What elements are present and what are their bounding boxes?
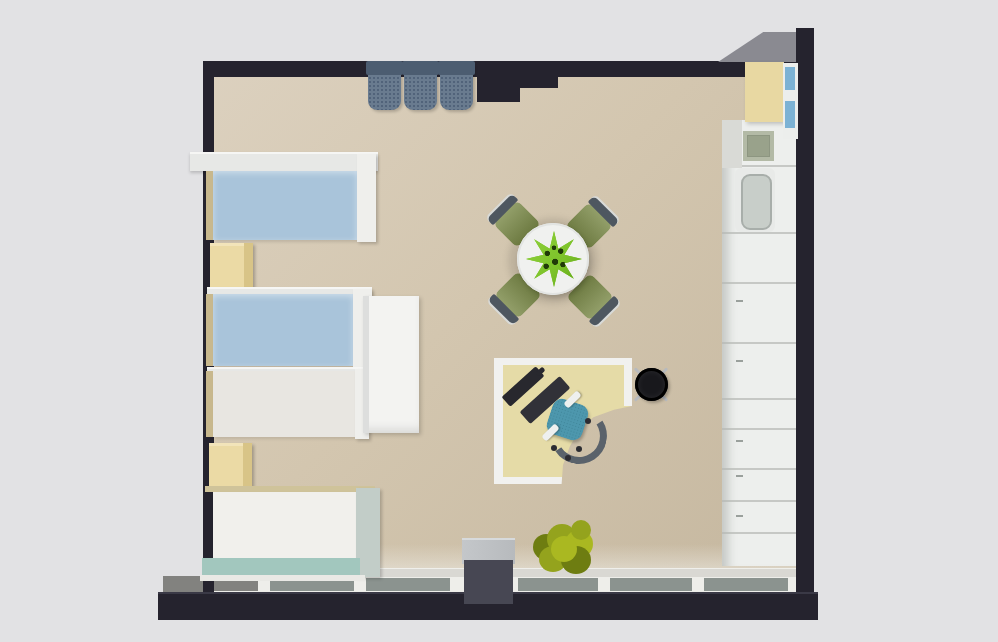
window-pane bbox=[704, 578, 788, 591]
single-bed-3 bbox=[213, 371, 355, 437]
upper-cabinet bbox=[745, 62, 784, 122]
floor-plan-render bbox=[0, 0, 998, 642]
bed1-footboard bbox=[357, 154, 376, 242]
cabinet-seam bbox=[722, 468, 796, 470]
sink-basin bbox=[741, 174, 772, 230]
window-pane bbox=[518, 578, 598, 591]
pillar bbox=[464, 560, 513, 604]
cabinet-seam bbox=[722, 232, 796, 234]
nightstand-1 bbox=[210, 243, 253, 288]
cabinet-seam bbox=[722, 342, 796, 344]
nightstand-2 bbox=[209, 443, 252, 488]
chair-backrest bbox=[438, 61, 475, 75]
kitchen-sink bbox=[735, 168, 775, 232]
shelf-items-blue bbox=[785, 67, 795, 90]
wall-inner-face bbox=[718, 32, 796, 62]
cabinet-seam bbox=[722, 532, 796, 534]
wall-right bbox=[796, 28, 814, 616]
single-bed-4 bbox=[213, 492, 358, 560]
desk-edge-right bbox=[624, 358, 632, 406]
chair-wheel bbox=[565, 455, 571, 461]
chair-wheel bbox=[551, 445, 557, 451]
single-bed-2 bbox=[213, 294, 353, 366]
cabinet-seam bbox=[722, 398, 796, 400]
bed2-headboard bbox=[206, 294, 213, 366]
window-pane bbox=[366, 578, 450, 591]
stool bbox=[635, 368, 668, 401]
desk-edge-left bbox=[494, 358, 503, 484]
cooktop bbox=[743, 131, 774, 161]
desk-edge-bottom bbox=[494, 477, 562, 484]
bed1-headboard bbox=[206, 171, 213, 240]
counter-step bbox=[722, 120, 742, 168]
bed3-headboard bbox=[206, 371, 213, 437]
chair-wheel bbox=[576, 446, 582, 452]
chair-wheel bbox=[585, 418, 591, 424]
single-bed-1 bbox=[213, 171, 357, 240]
cabinet-seam bbox=[722, 282, 796, 284]
shelf-items-blue bbox=[785, 101, 795, 128]
cabinet-handle bbox=[736, 515, 743, 517]
floor-plant bbox=[527, 520, 597, 576]
desk-edge-top bbox=[494, 358, 632, 365]
wall-alcove bbox=[477, 61, 520, 102]
bed2-frame-edge bbox=[207, 287, 372, 294]
centerpiece-plant bbox=[526, 231, 582, 287]
cabinet-seam bbox=[722, 428, 796, 430]
window-pane bbox=[610, 578, 692, 591]
wall-chair bbox=[440, 64, 473, 110]
cabinet-seam bbox=[722, 500, 796, 502]
wall-chair bbox=[404, 64, 437, 110]
cabinet-handle bbox=[736, 440, 743, 442]
bed4-frame-bottom bbox=[200, 575, 365, 581]
cabinet-handle bbox=[736, 300, 743, 302]
chair-backrest bbox=[366, 61, 403, 75]
wall-chair bbox=[368, 64, 401, 110]
wardrobe bbox=[363, 296, 419, 433]
cabinet-handle bbox=[736, 360, 743, 362]
chair-backrest bbox=[402, 61, 439, 75]
bed1-canopy bbox=[190, 152, 378, 171]
cabinet-handle bbox=[736, 475, 743, 477]
